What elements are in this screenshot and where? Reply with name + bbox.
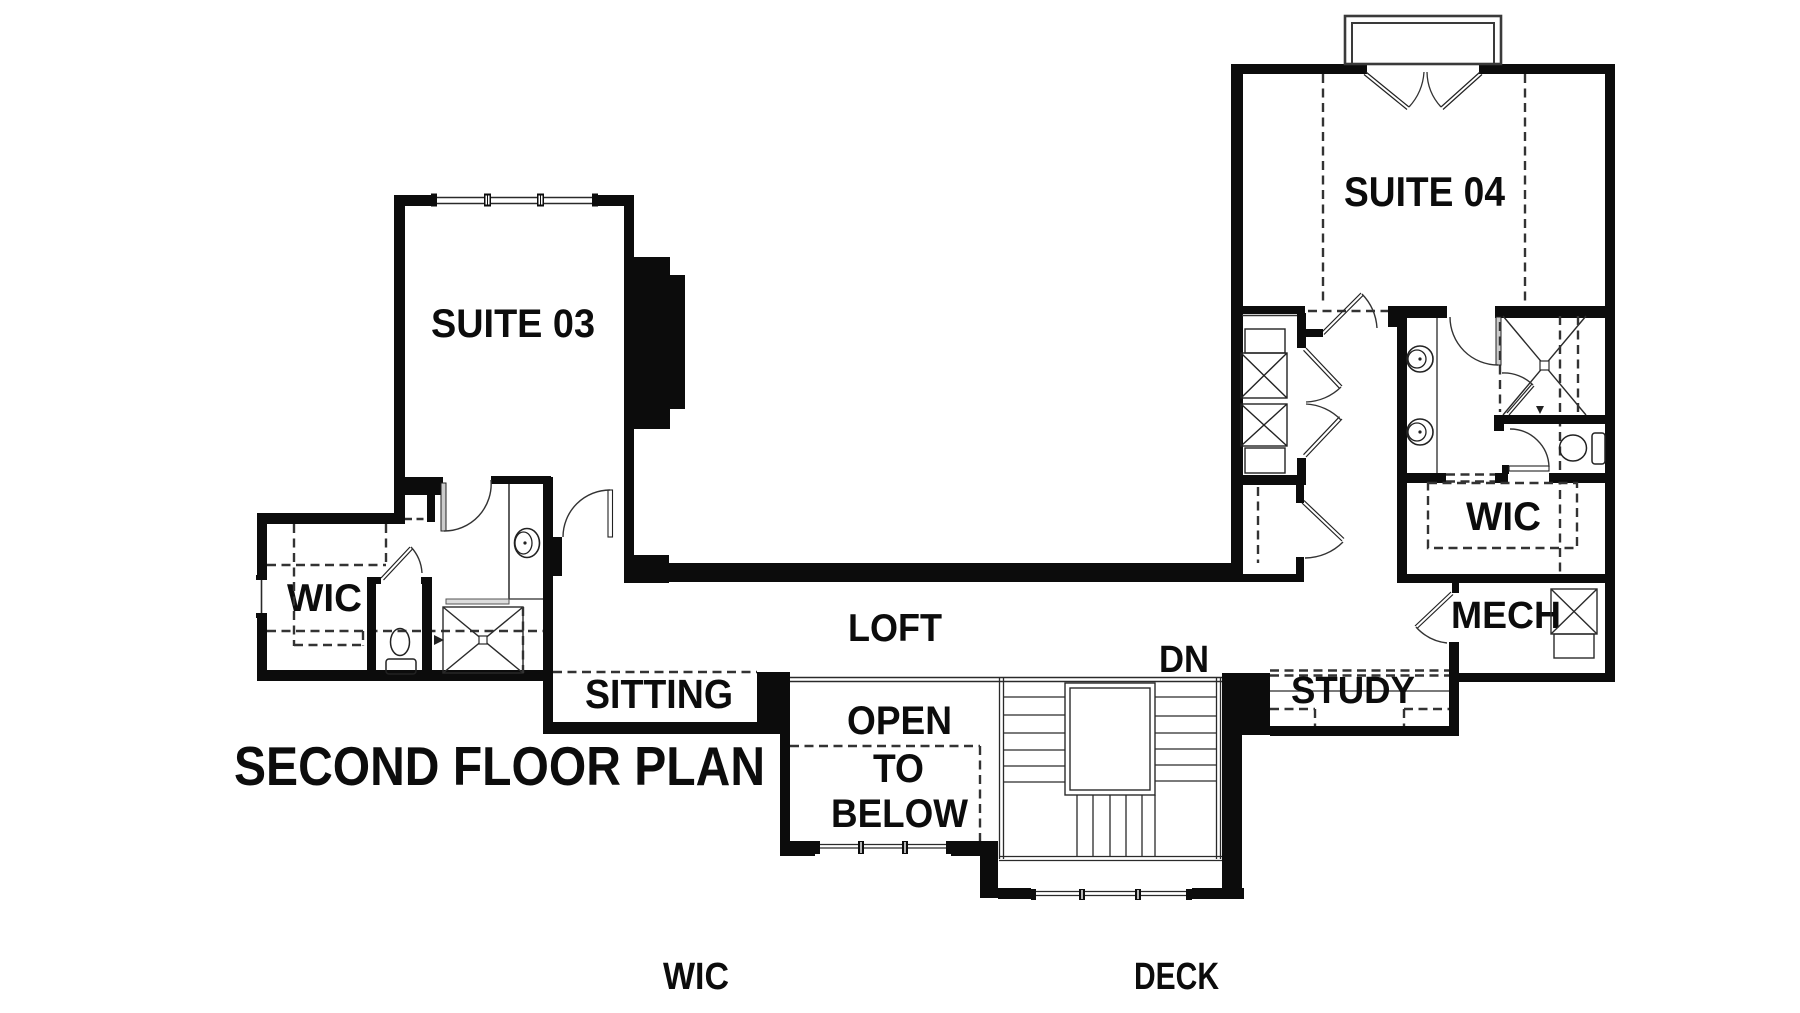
svg-text:SECOND FLOOR PLAN: SECOND FLOOR PLAN — [234, 735, 765, 797]
svg-text:DECK: DECK — [1134, 956, 1219, 998]
svg-text:TO: TO — [873, 747, 924, 791]
svg-text:DN: DN — [1159, 639, 1209, 681]
svg-text:STUDY: STUDY — [1291, 670, 1415, 712]
svg-text:SITTING: SITTING — [585, 671, 733, 717]
svg-text:LOFT: LOFT — [848, 607, 942, 650]
svg-text:BELOW: BELOW — [831, 792, 968, 836]
svg-text:SUITE 04: SUITE 04 — [1344, 168, 1506, 215]
svg-text:WIC: WIC — [663, 956, 729, 998]
svg-text:MECH: MECH — [1451, 595, 1561, 637]
svg-text:OPEN: OPEN — [847, 699, 952, 743]
svg-text:SUITE 03: SUITE 03 — [431, 302, 595, 346]
svg-text:WIC: WIC — [287, 577, 362, 620]
svg-text:WIC: WIC — [1466, 495, 1541, 539]
